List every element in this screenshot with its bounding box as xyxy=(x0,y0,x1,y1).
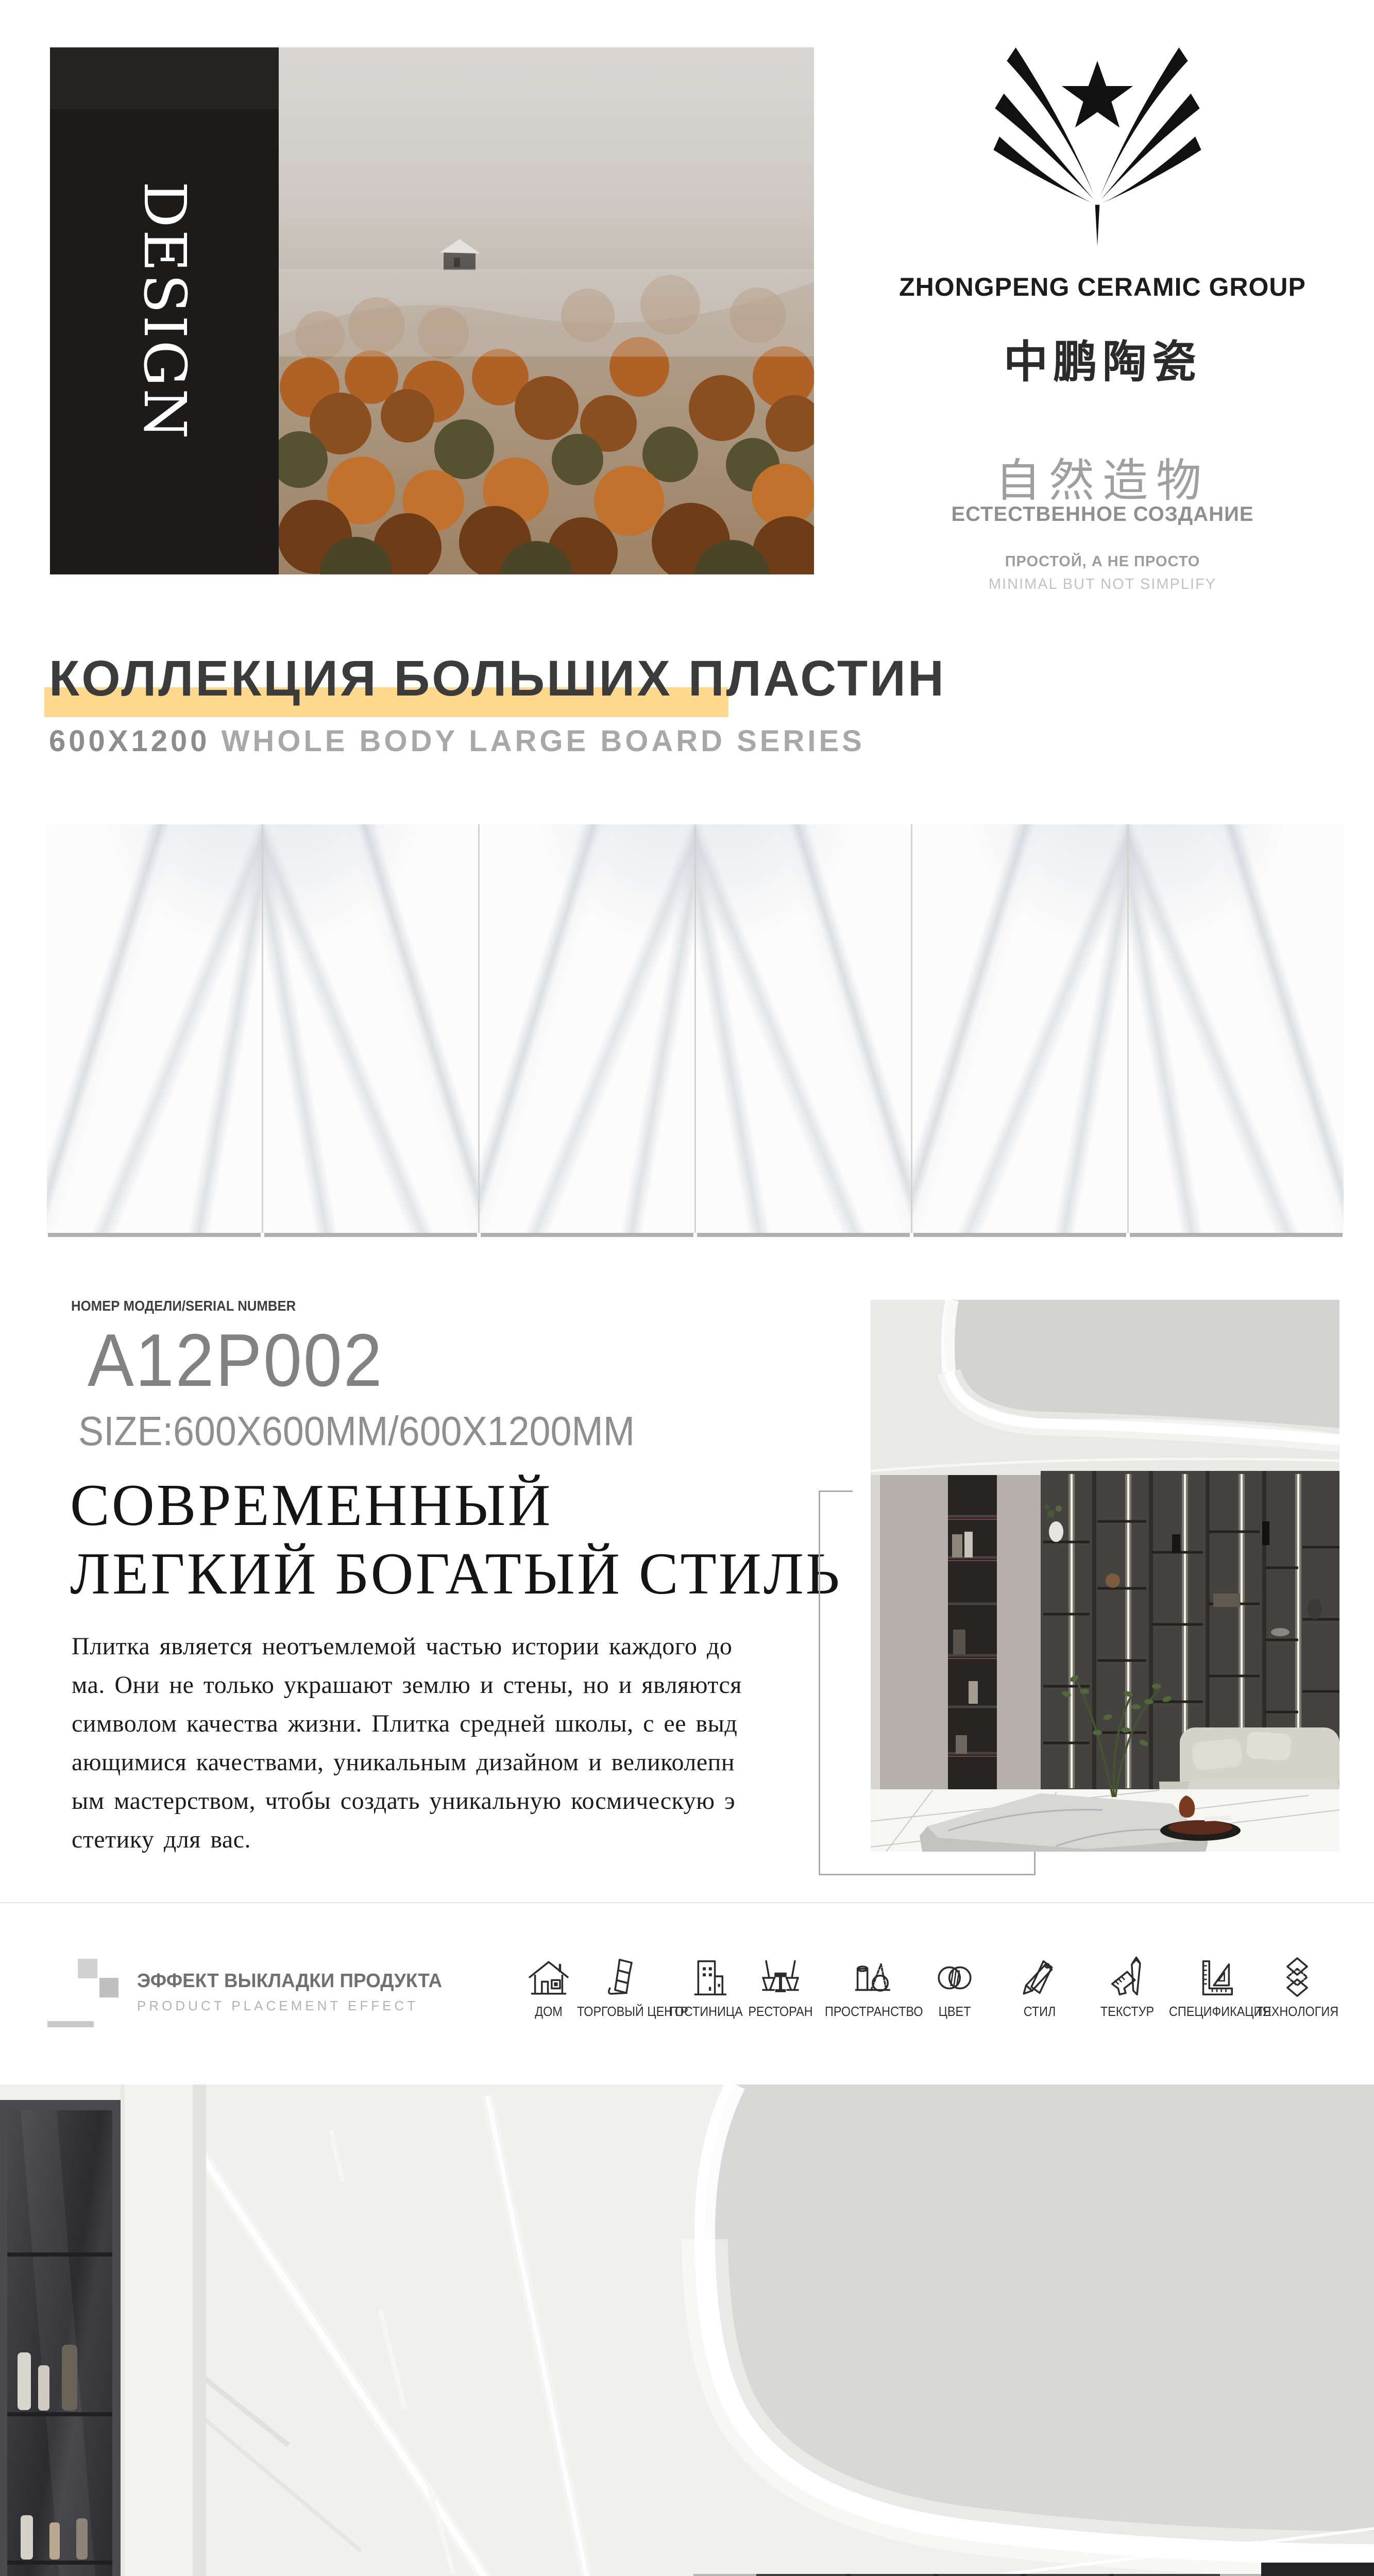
placement-heading-ru: ЭФФЕКТ ВЫКЛАДКИ ПРОДУКТА xyxy=(137,1970,442,1992)
tile-swatch-row xyxy=(47,824,1344,1237)
photo-frame-line-bottom xyxy=(819,1874,1036,1875)
placement-heading-en: PRODUCT PLACEMENT EFFECT xyxy=(137,1998,418,2014)
brand-slogan-en: MINIMAL BUT NOT SIMPLIFY xyxy=(876,576,1329,593)
brand-mark-ru: ЕСТЕСТВЕННОЕ СОЗДАНИЕ xyxy=(876,503,1329,526)
tile-swatch xyxy=(47,824,262,1233)
category-restaurant: РЕСТОРАН xyxy=(729,1955,832,2020)
tile-swatch xyxy=(911,824,1127,1233)
tile-swatch xyxy=(262,824,478,1233)
tile-swatch xyxy=(1127,824,1344,1233)
collection-subtitle-size: 600X1200 xyxy=(49,724,210,758)
style-icon xyxy=(1017,1955,1062,2001)
product-photo xyxy=(871,1300,1339,1852)
brand-name-cn: 中鹏陶瓷 xyxy=(876,326,1329,390)
product-size: SIZE:600X600MM/600X1200MM xyxy=(78,1411,635,1452)
category-label: РЕСТОРАН xyxy=(734,2004,827,2020)
space-icon xyxy=(849,1955,894,2001)
collection-title: КОЛЛЕКЦИЯ БОЛЬШИХ ПЛАСТИН xyxy=(49,653,946,703)
tile-swatch xyxy=(478,824,694,1233)
serial-number: A12P002 xyxy=(88,1323,383,1398)
collection-subtitle: 600X1200 WHOLE BODY LARGE BOARD SERIES xyxy=(49,726,865,756)
description-line: символом качества жизни. Плитка средней … xyxy=(72,1704,803,1743)
description-line: ма. Они не только украшают землю и стены… xyxy=(72,1666,803,1704)
category-texture: ТЕКСТУР xyxy=(1076,1955,1179,2020)
photo-frame-line-top xyxy=(819,1490,853,1492)
collection-subtitle-text: WHOLE BODY LARGE BOARD SERIES xyxy=(222,724,865,758)
category-label: ЦВЕТ xyxy=(908,2004,1001,2020)
brand-mark-cn: 自然造物 xyxy=(876,444,1329,510)
design-banner-label: DESIGN xyxy=(131,181,198,441)
category-label: ТЕКСТУР xyxy=(1081,2004,1174,2020)
color-icon xyxy=(932,1955,977,2001)
hotel-icon xyxy=(683,1955,728,2001)
brand-name-en: ZHONGPENG CERAMIC GROUP xyxy=(876,272,1329,302)
category-label: СТИЛ xyxy=(993,2004,1086,2020)
category-technology: ТЕХНОЛОГИЯ xyxy=(1246,1955,1349,2020)
house-icon xyxy=(526,1955,571,2001)
category-label: ТЕХНОЛОГИЯ xyxy=(1251,2004,1344,2020)
design-banner-top-band xyxy=(50,47,279,109)
section-divider xyxy=(0,1902,1374,1903)
product-description: Плитка является неотъемлемой частью исто… xyxy=(72,1627,803,1859)
brand-block: ZHONGPENG CERAMIC GROUP 中鹏陶瓷 自然造物 ЕСТЕСТ… xyxy=(876,47,1329,604)
texture-icon xyxy=(1105,1955,1150,2001)
specification-icon xyxy=(1193,1955,1238,2001)
style-title-line1: СОВРЕМЕННЫЙ xyxy=(70,1476,553,1535)
serial-label: НОМЕР МОДЕЛИ/SERIAL NUMBER xyxy=(71,1298,296,1314)
description-line: Плитка является неотъемлемой частью исто… xyxy=(72,1627,803,1666)
photo-frame-line-left xyxy=(819,1490,820,1875)
deco-bar xyxy=(47,2021,94,2027)
restaurant-icon xyxy=(758,1955,803,2001)
wing-star-logo-icon xyxy=(986,47,1209,249)
description-line: ающимися качествами, уникальным дизайном… xyxy=(72,1743,803,1782)
description-line: стетику для вас. xyxy=(72,1820,803,1859)
deco-square-dark xyxy=(99,1978,118,1997)
description-line: ым мастерством, чтобы создать уникальную… xyxy=(72,1782,803,1820)
brand-slogan-ru: ПРОСТОЙ, А НЕ ПРОСТО xyxy=(876,553,1329,570)
style-title-line2: ЛЕГКИЙ БОГАТЫЙ СТИЛЬ xyxy=(70,1544,842,1603)
design-banner: DESIGN xyxy=(50,47,279,574)
deco-square-light xyxy=(78,1959,97,1978)
technology-icon xyxy=(1275,1955,1320,2001)
tile-swatch xyxy=(694,824,911,1233)
forest-photo xyxy=(279,47,814,574)
photo-frame-line-right xyxy=(1034,1852,1036,1875)
mall-icon xyxy=(601,1955,646,2001)
showroom-photo xyxy=(0,2084,1374,2576)
